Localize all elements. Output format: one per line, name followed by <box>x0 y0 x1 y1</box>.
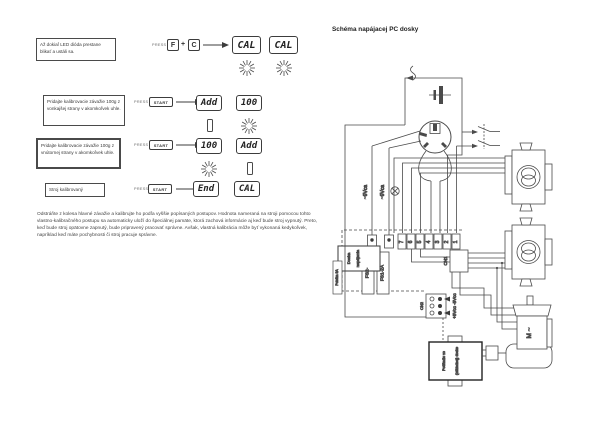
cn2-connector <box>426 294 450 342</box>
key-c-button: C <box>188 39 200 51</box>
start-button: START <box>148 184 172 194</box>
flash-icon <box>238 59 256 77</box>
steady-indicator <box>247 162 253 175</box>
terminal-3: 3 <box>435 240 441 243</box>
wiring-schematic: ~9Vca ~9Vca 7 6 5 4 3 2 1 <box>328 40 600 424</box>
flash-icon <box>275 59 293 77</box>
display-cal-1: CAL <box>232 36 261 54</box>
cn2-label: CN2 <box>419 301 424 310</box>
press-label-4: PRESS <box>134 187 148 191</box>
terminal-4: 4 <box>426 240 432 243</box>
step-note-1: Až dokiaľ LED dióda prestane blikať a us… <box>36 38 116 61</box>
piezo-sensor-lower <box>505 218 552 286</box>
start-button: START <box>149 97 173 107</box>
fuse2-label: FS2- <box>365 267 371 278</box>
step-note-2: Pridajte kalibrovacie závažie 100g z von… <box>43 95 125 126</box>
display-cal: CAL <box>234 181 260 197</box>
display-end: End <box>193 181 219 197</box>
press-label-1: PRESS <box>152 43 166 47</box>
counter-label-line1: Počítadlo vo <box>442 351 446 371</box>
board-label-line1: Doska <box>346 252 351 264</box>
piezo-sensor-upper <box>505 143 552 211</box>
plus-sign: + <box>181 41 185 48</box>
flash-icon <box>240 117 258 135</box>
flash-icon <box>200 160 218 178</box>
sensor1-wires <box>394 132 505 233</box>
screw-ground-icon <box>391 187 399 195</box>
cn1-label: CN1 <box>443 256 448 265</box>
press-label-3: PRESS <box>134 143 148 147</box>
counter-box <box>429 336 498 386</box>
terminal-6: 6 <box>408 240 414 243</box>
terminal-5: 5 <box>417 240 423 243</box>
display-add: Add <box>196 95 222 111</box>
vcc-label: +5Vcc -5Vcc <box>452 293 457 319</box>
display-add: Add <box>236 138 262 154</box>
cn1-connector <box>412 249 506 272</box>
counter-label-line2: (základnej) doske <box>455 347 459 375</box>
schematic-title: Schéma napájacej PC dosky <box>332 26 418 33</box>
start-button: START <box>149 140 173 150</box>
step-note-3: Pridajte kalibrovacie závažie 100g z vnú… <box>36 138 121 169</box>
power-switch <box>457 124 501 233</box>
terminal-2: 2 <box>444 240 450 243</box>
fuse-note-label: Poistka 8A <box>335 269 339 286</box>
ac-label-right: ~9Vca <box>380 185 386 200</box>
display-cal-2: CAL <box>269 36 298 54</box>
display-100: 100 <box>196 138 222 154</box>
key-f-button: F <box>167 39 179 51</box>
motor-label: M ~ <box>526 327 533 338</box>
ac-label-left: ~9Vca <box>363 185 369 200</box>
manual-page: Až dokiaľ LED dióda prestane blikať a us… <box>0 0 600 424</box>
fuse1-label: FS1-2A <box>380 264 386 281</box>
ac-9v-wires <box>372 131 421 236</box>
arrow-left-icon <box>406 76 413 81</box>
arrow-right-icon <box>203 41 229 49</box>
plug-icon <box>429 86 451 104</box>
display-100: 100 <box>236 95 262 111</box>
steady-indicator <box>207 119 213 132</box>
terminal-1: 1 <box>453 240 459 243</box>
terminal-7: 7 <box>399 240 405 243</box>
board-label-line2: napájania <box>355 249 360 267</box>
calibration-paragraph: Odstráňte z kolesa hlavné závažie a kali… <box>37 212 319 240</box>
press-label-2: PRESS <box>134 100 148 104</box>
round-connector <box>419 121 452 233</box>
step-note-4: Stroj kalibrovaný <box>45 183 105 197</box>
